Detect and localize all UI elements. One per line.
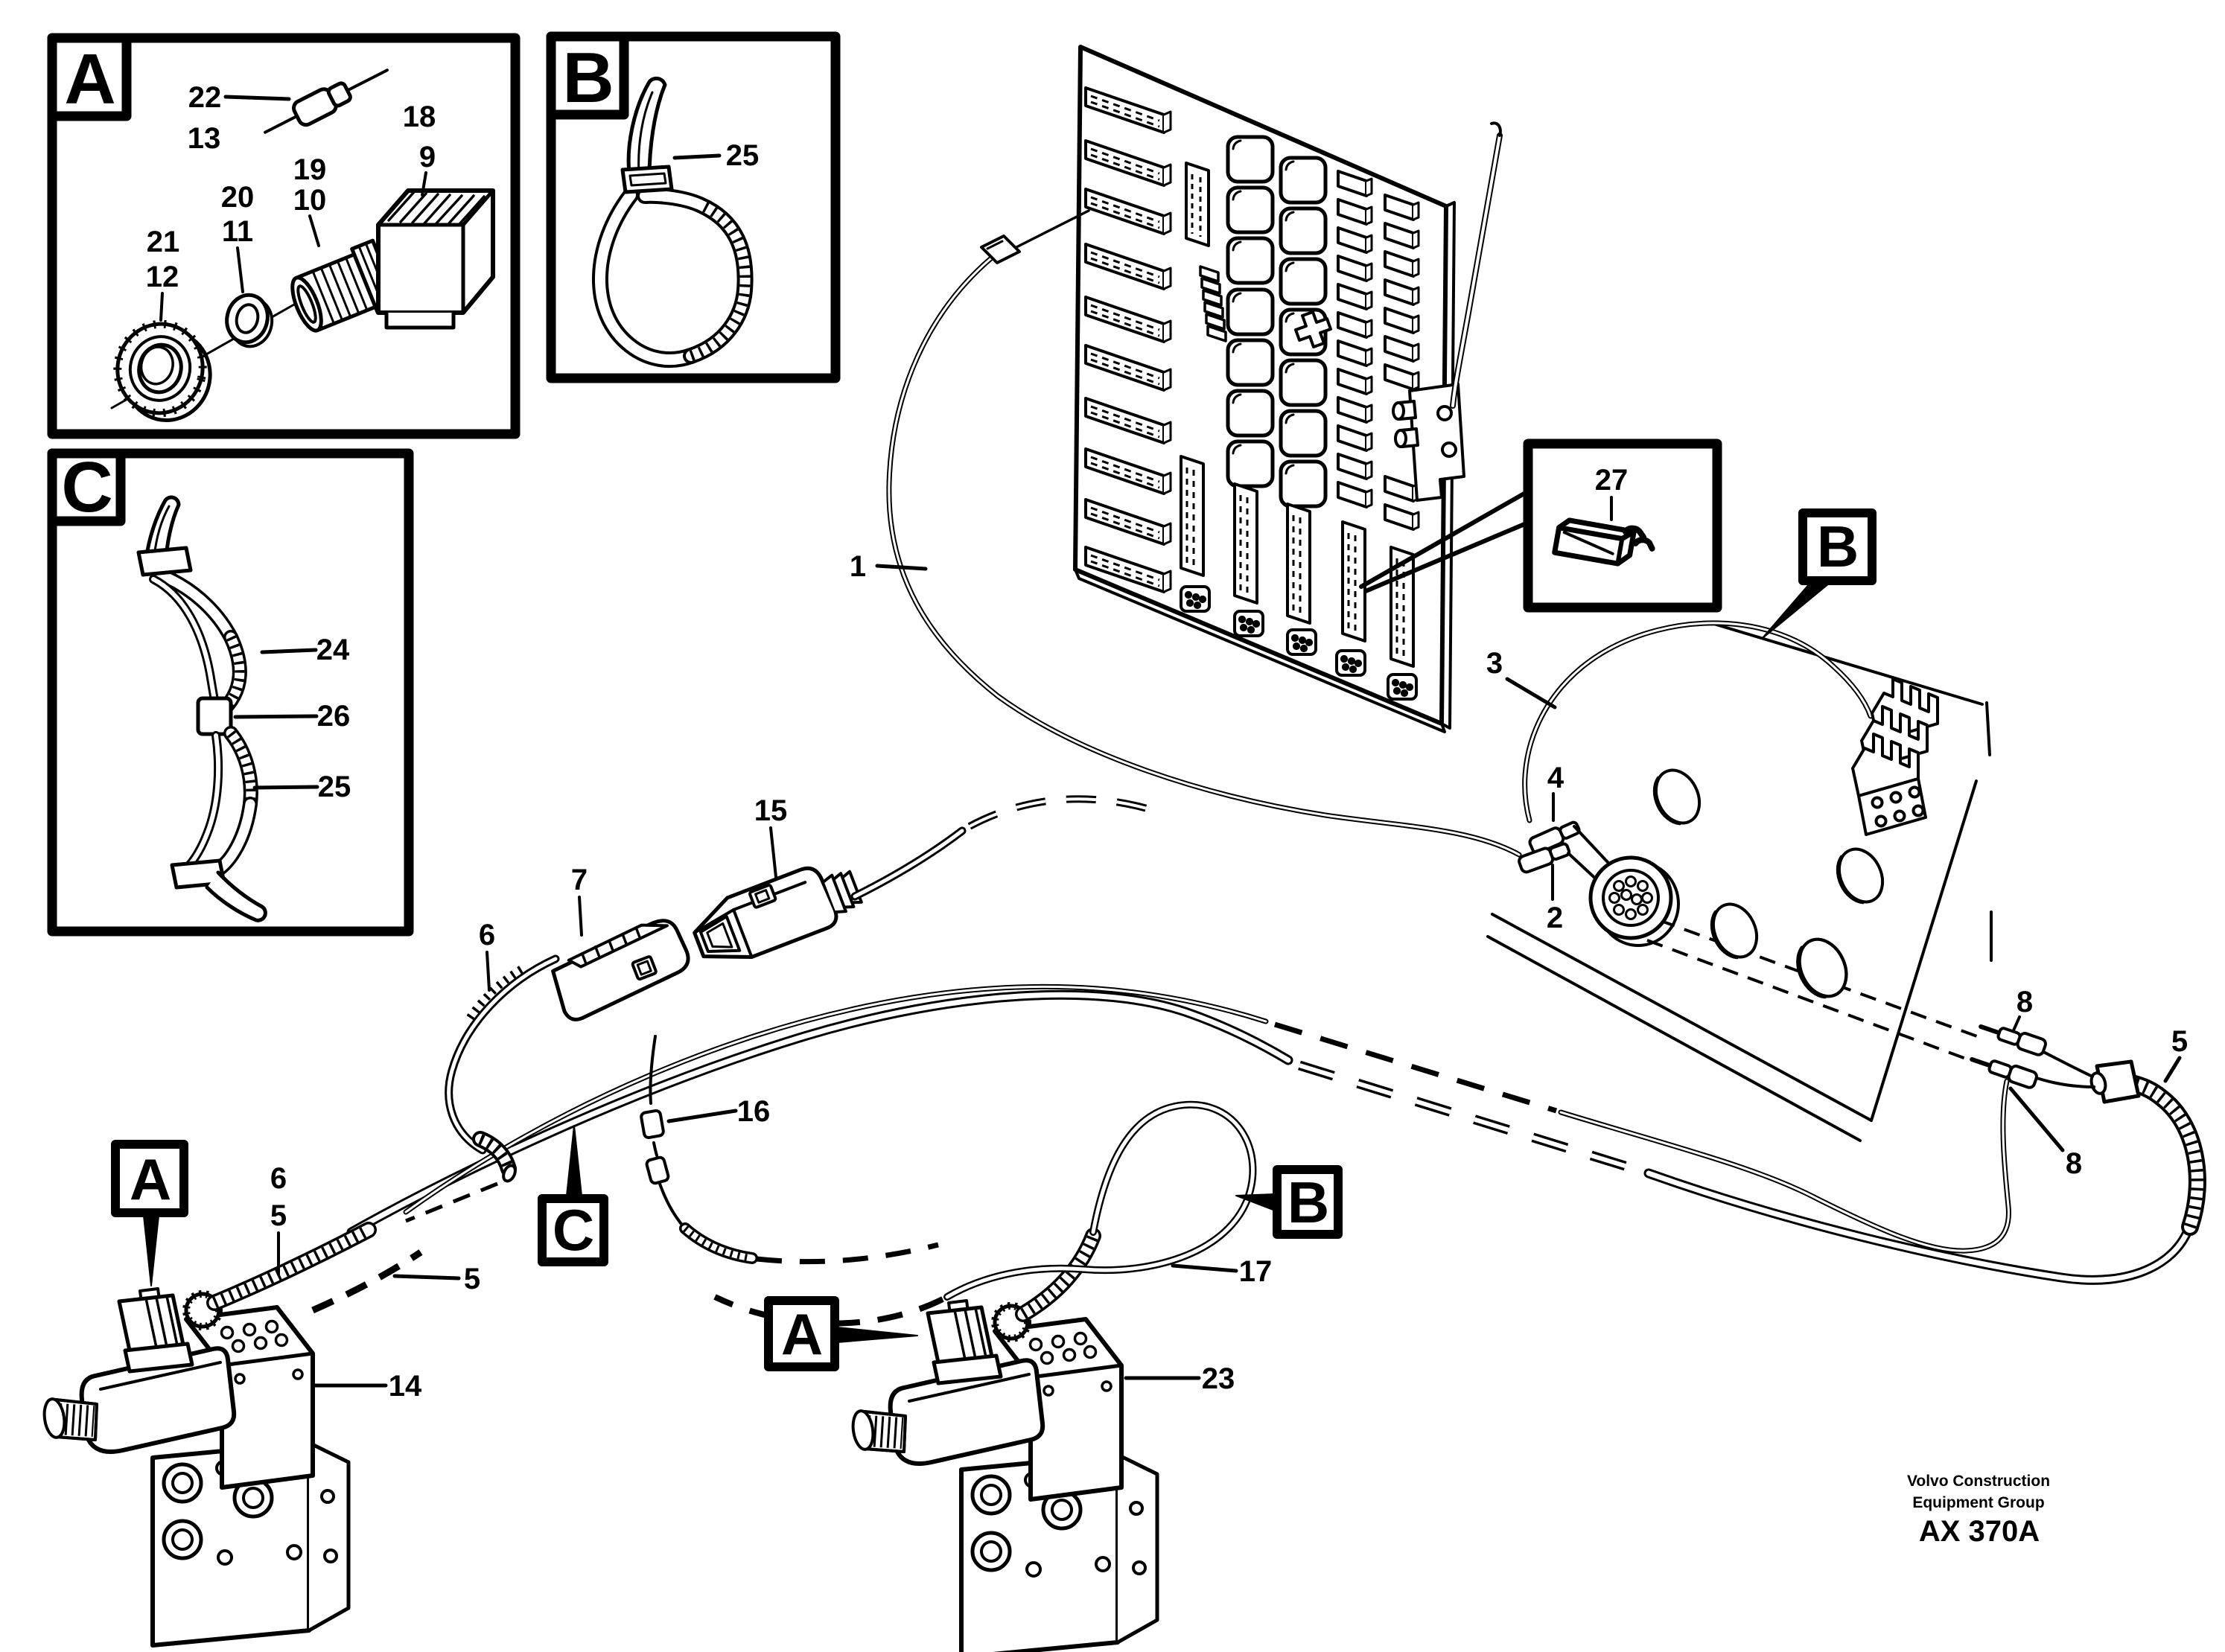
svg-text:3: 3 xyxy=(1486,647,1503,680)
svg-text:24: 24 xyxy=(316,634,350,666)
svg-text:22: 22 xyxy=(188,81,222,114)
svg-text:26: 26 xyxy=(317,700,351,733)
svg-text:25: 25 xyxy=(318,771,351,803)
svg-text:A: A xyxy=(64,39,115,119)
svg-text:12: 12 xyxy=(146,261,179,293)
svg-text:5: 5 xyxy=(270,1199,287,1232)
svg-text:B: B xyxy=(1817,514,1859,579)
svg-text:20: 20 xyxy=(221,181,255,214)
svg-text:AX 370A: AX 370A xyxy=(1919,1515,2040,1548)
svg-text:8: 8 xyxy=(2066,1147,2082,1180)
svg-text:A: A xyxy=(130,1146,171,1212)
svg-text:B: B xyxy=(562,38,614,118)
svg-text:10: 10 xyxy=(293,184,327,217)
svg-text:2: 2 xyxy=(1547,902,1563,934)
svg-text:25: 25 xyxy=(726,139,760,172)
svg-text:21: 21 xyxy=(147,226,180,258)
svg-text:18: 18 xyxy=(403,101,436,133)
svg-text:Volvo Construction: Volvo Construction xyxy=(1907,1473,2050,1490)
svg-text:23: 23 xyxy=(1202,1362,1235,1395)
svg-text:15: 15 xyxy=(754,794,788,827)
svg-text:19: 19 xyxy=(293,153,327,186)
svg-text:C: C xyxy=(553,1197,594,1263)
svg-text:4: 4 xyxy=(1547,762,1564,794)
svg-text:C: C xyxy=(61,447,112,527)
svg-text:6: 6 xyxy=(270,1162,287,1195)
svg-text:11: 11 xyxy=(222,215,253,248)
svg-text:5: 5 xyxy=(2171,1025,2188,1058)
svg-text:14: 14 xyxy=(389,1370,422,1403)
svg-text:13: 13 xyxy=(188,122,221,155)
svg-text:7: 7 xyxy=(571,864,588,896)
svg-text:9: 9 xyxy=(419,141,436,173)
svg-text:8: 8 xyxy=(2016,986,2033,1018)
svg-text:17: 17 xyxy=(1239,1255,1273,1288)
svg-text:B: B xyxy=(1287,1170,1329,1235)
svg-text:1: 1 xyxy=(850,550,866,583)
svg-text:A: A xyxy=(781,1301,823,1367)
svg-text:6: 6 xyxy=(479,919,495,951)
svg-text:27: 27 xyxy=(1595,464,1629,497)
svg-text:16: 16 xyxy=(737,1095,771,1128)
svg-text:5: 5 xyxy=(464,1263,480,1295)
svg-text:Equipment Group: Equipment Group xyxy=(1912,1494,2044,1511)
